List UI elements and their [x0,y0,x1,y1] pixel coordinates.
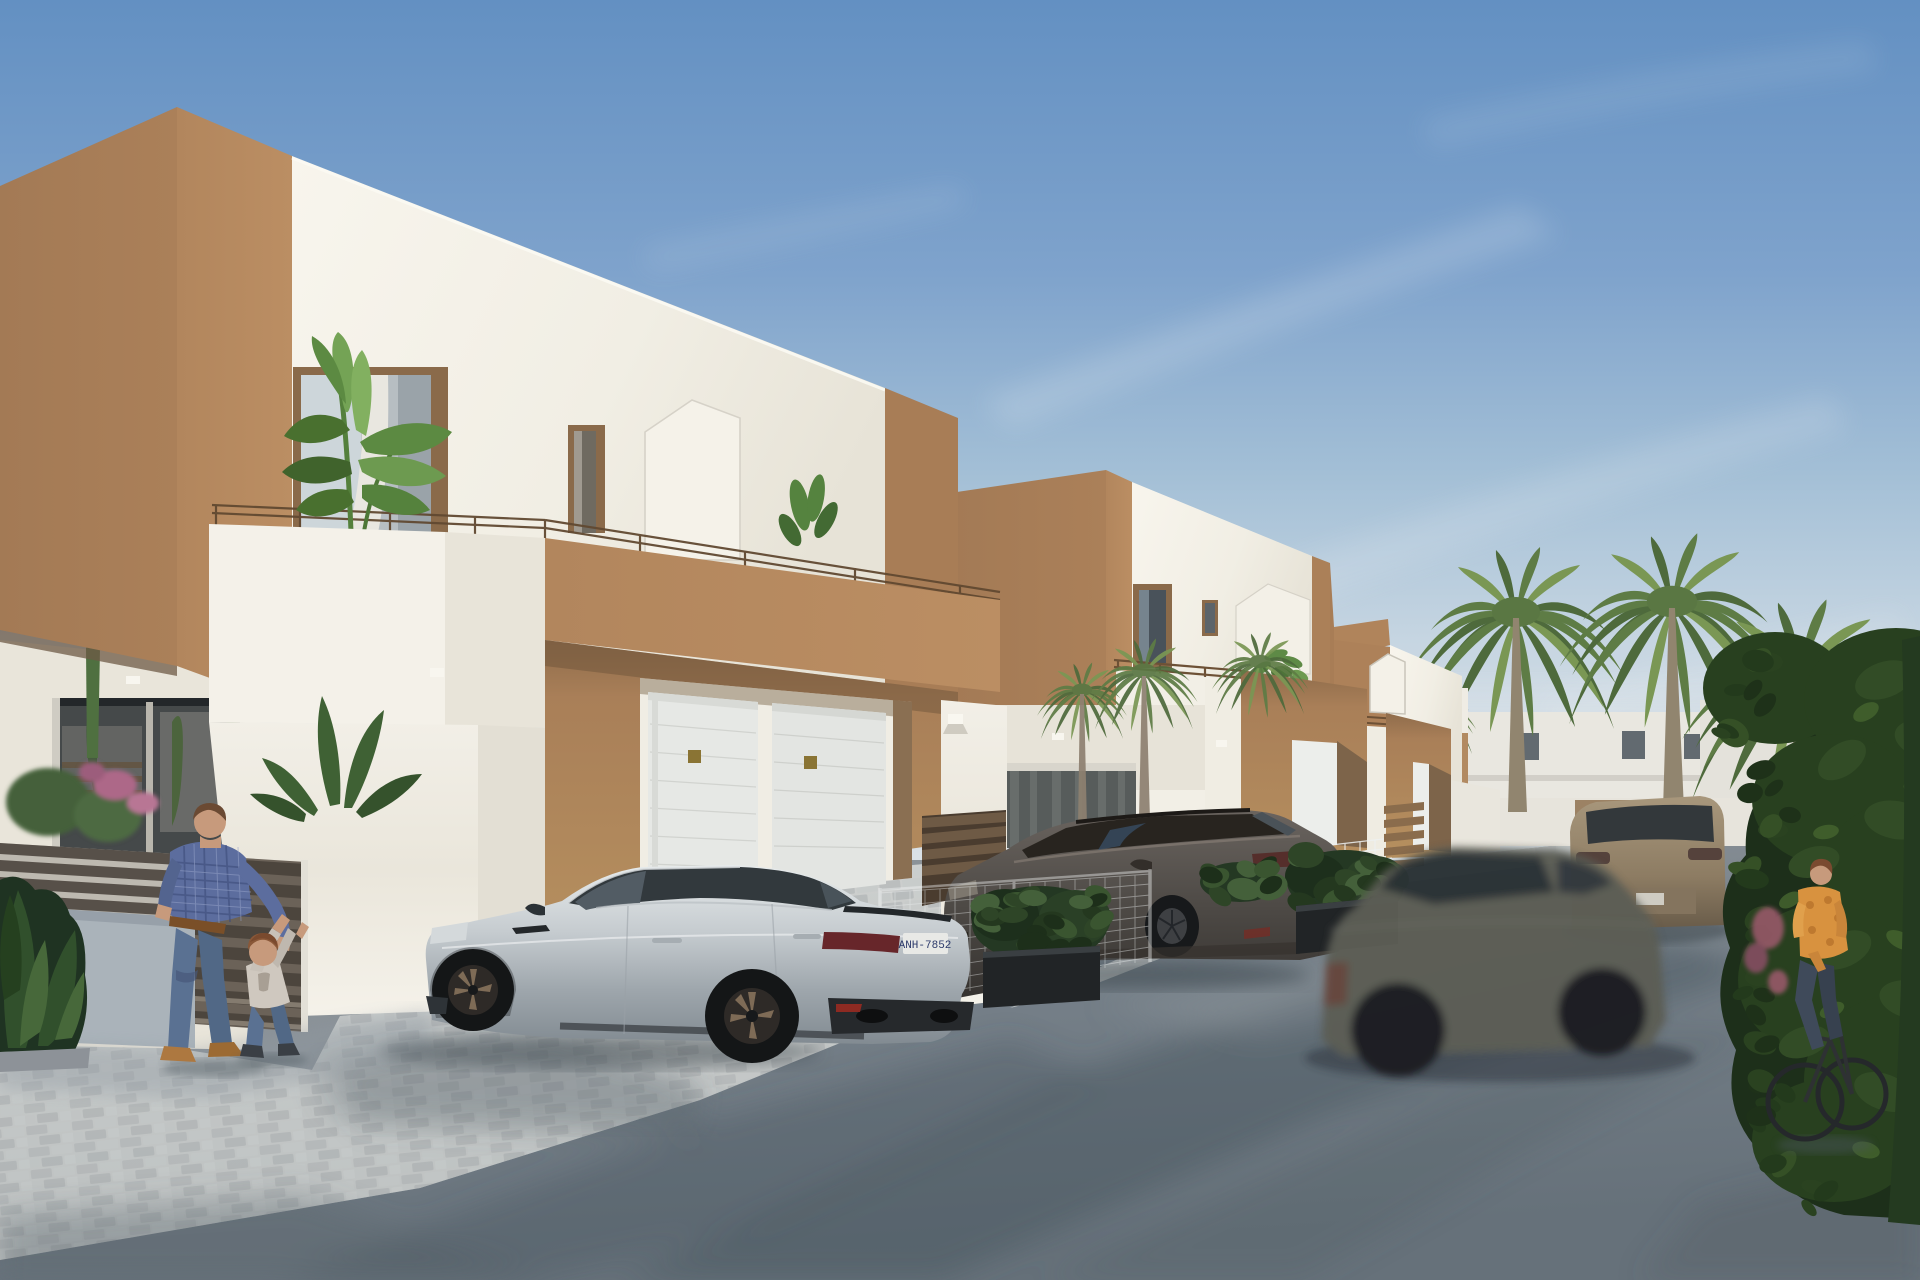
svg-text:ANH-7852: ANH-7852 [899,940,952,952]
